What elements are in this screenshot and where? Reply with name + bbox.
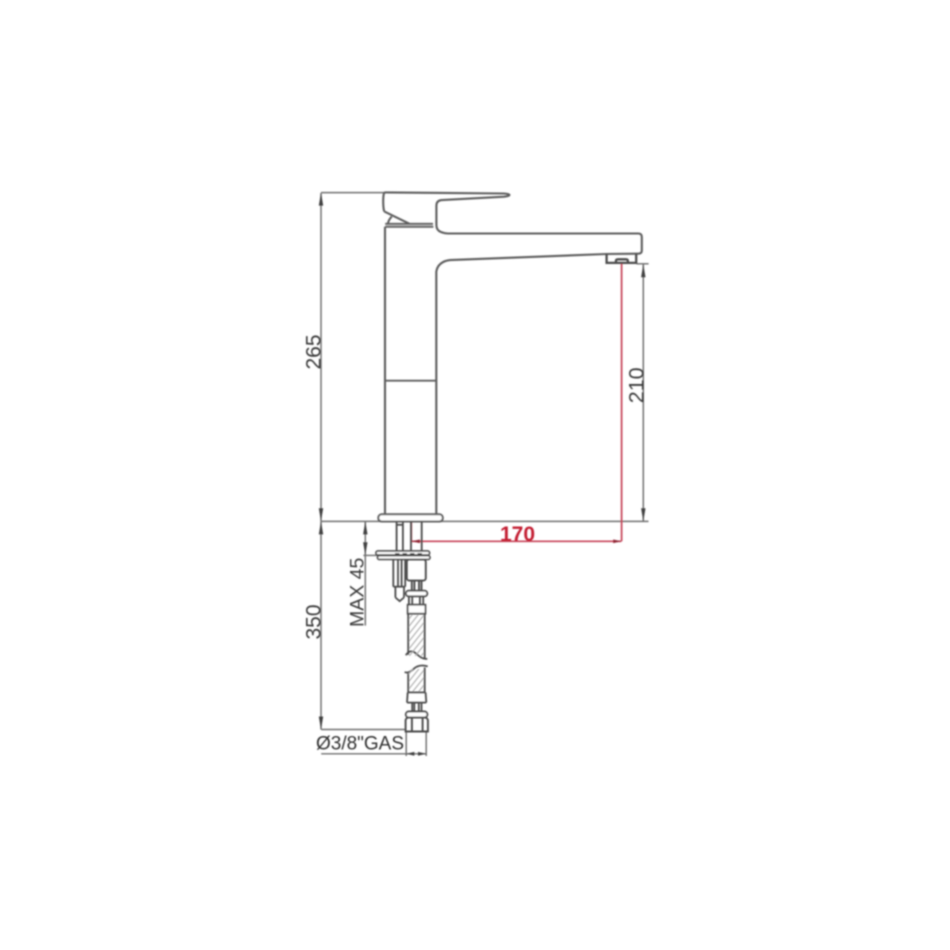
svg-text:170: 170 (500, 523, 535, 546)
svg-text:265: 265 (303, 334, 326, 369)
svg-text:350: 350 (303, 604, 326, 639)
svg-text:MAX 45: MAX 45 (347, 557, 369, 627)
svg-text:210: 210 (625, 367, 649, 403)
svg-text:Ø3/8"GAS: Ø3/8"GAS (316, 734, 404, 755)
